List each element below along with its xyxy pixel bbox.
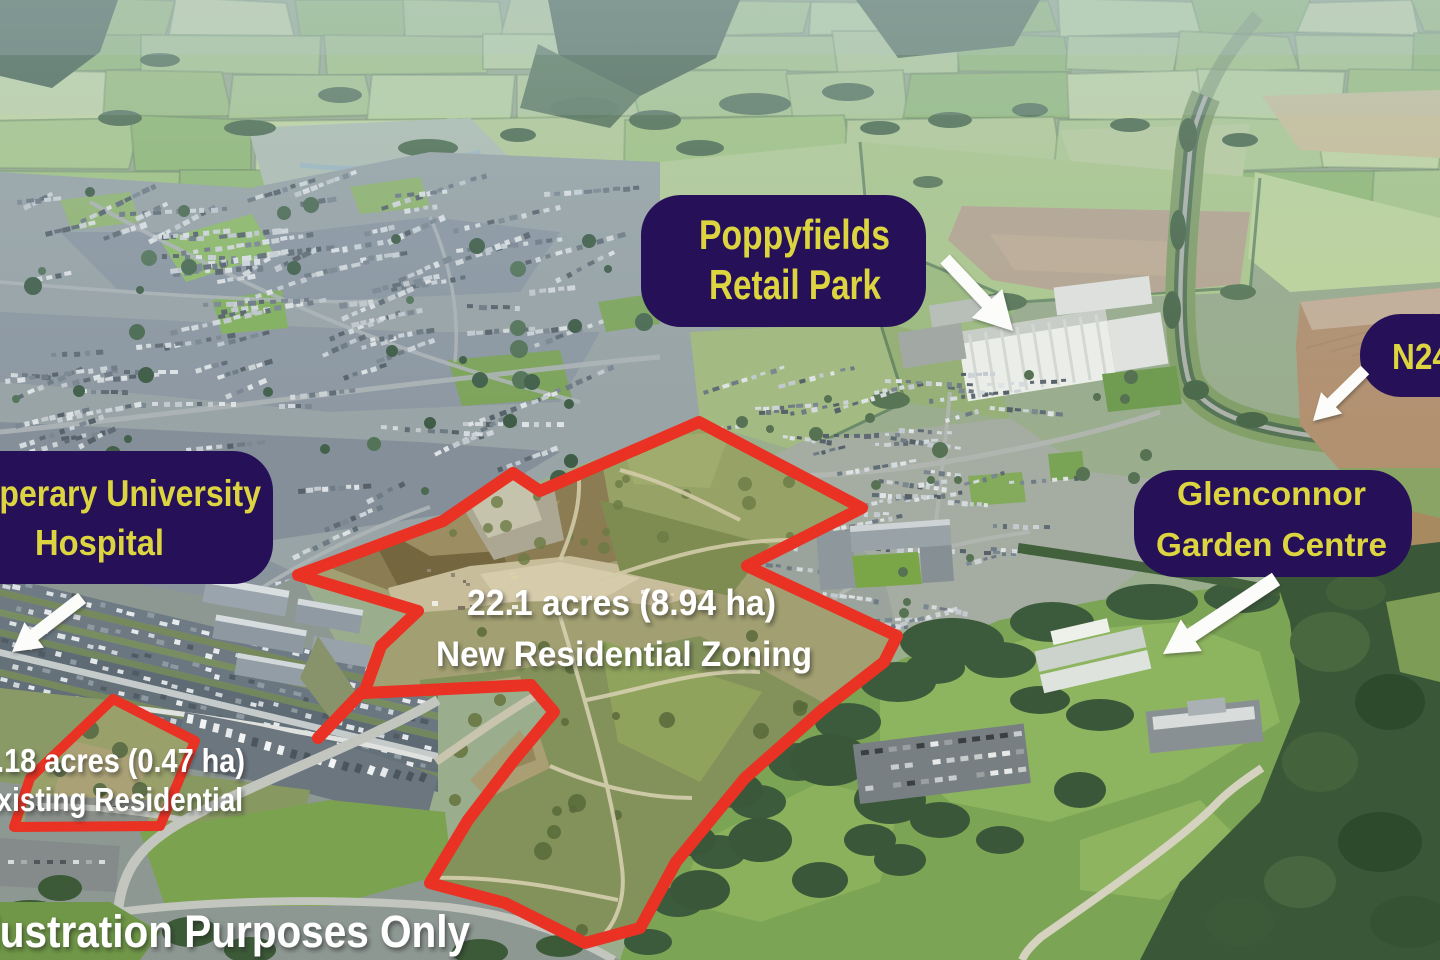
svg-text:Illustration Purposes Only: Illustration Purposes Only [0,906,470,957]
svg-text:Glenconnor: Glenconnor [1177,475,1366,512]
svg-text:Hospital: Hospital [35,522,164,563]
svg-text:Tipperary University: Tipperary University [0,473,261,514]
svg-text:22.1 acres (8.94 ha): 22.1 acres (8.94 ha) [467,582,776,623]
svg-text:Retail Park: Retail Park [709,261,882,308]
svg-text:N24: N24 [1392,336,1440,377]
svg-text:New Residential Zoning: New Residential Zoning [436,635,812,674]
svg-text:Existing Residential: Existing Residential [0,781,243,818]
svg-text:Poppyfields: Poppyfields [699,211,890,258]
svg-text:Garden Centre: Garden Centre [1156,526,1387,563]
svg-text:1.18 acres (0.47 ha): 1.18 acres (0.47 ha) [0,742,245,779]
